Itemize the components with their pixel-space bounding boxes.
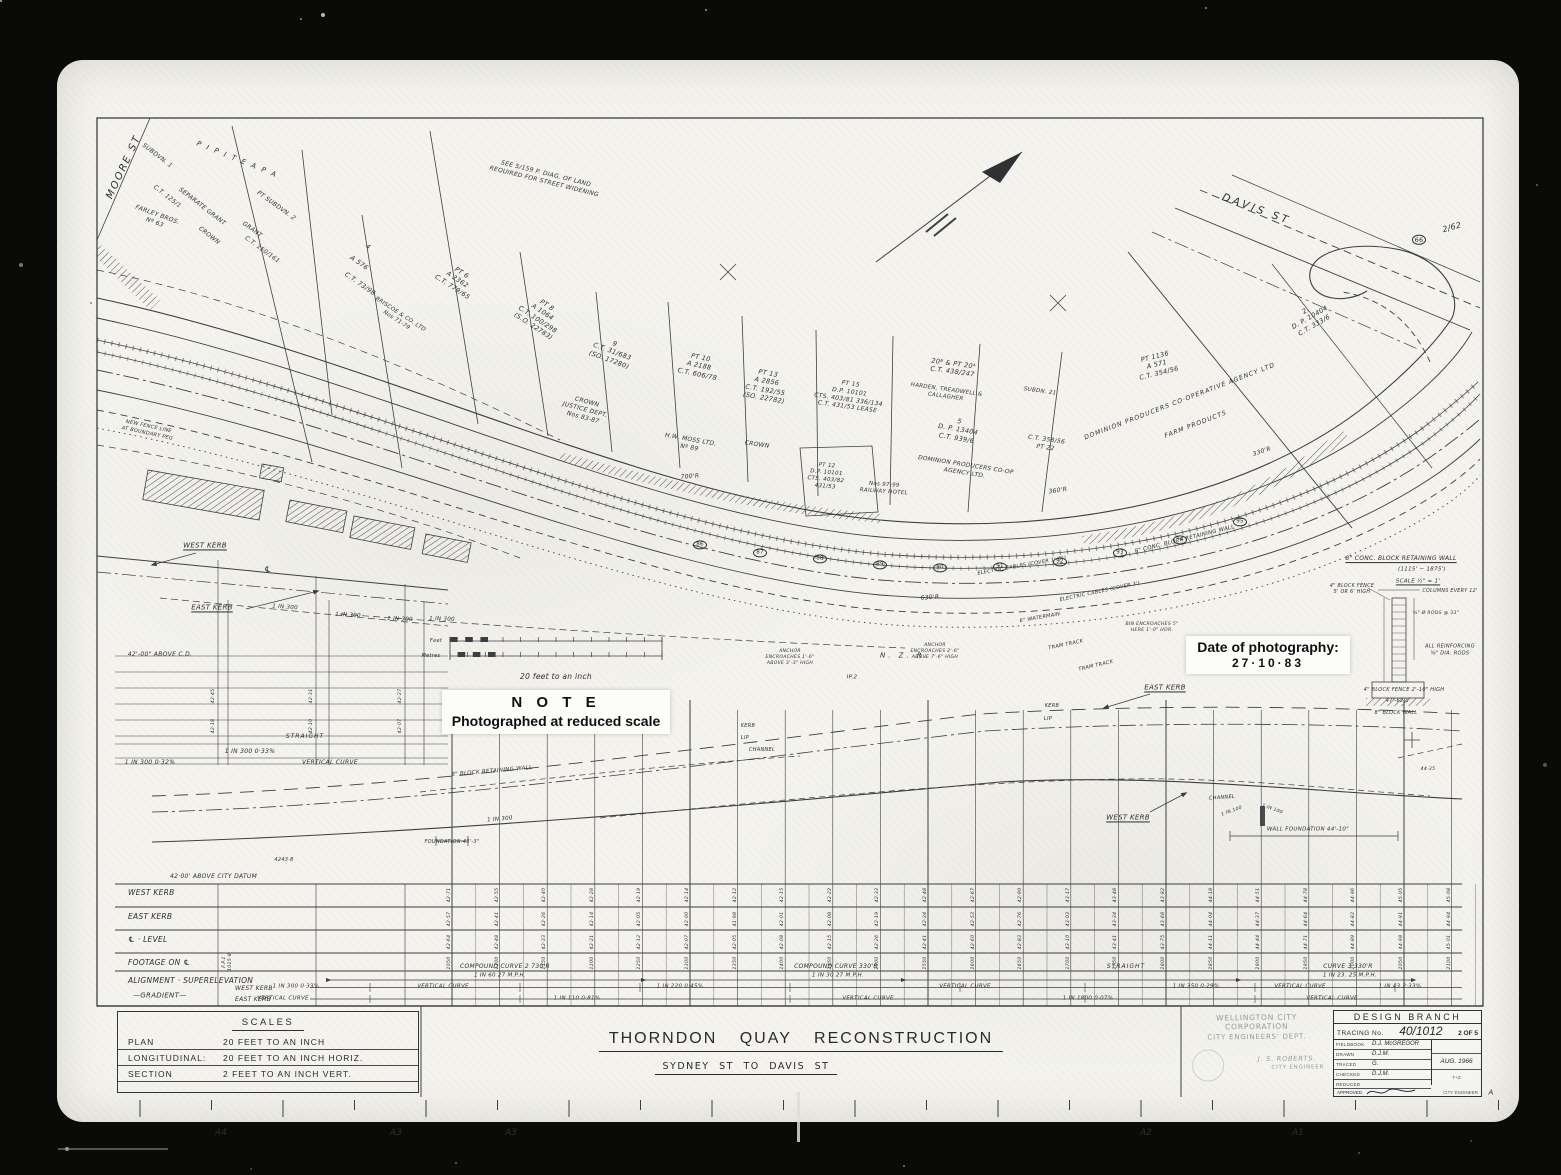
scan-ruler-mark: A3 <box>390 1128 402 1138</box>
scales-row-value: 20 FEET TO AN INCH <box>223 1037 408 1047</box>
approved-signature <box>1365 1086 1417 1098</box>
field-label: DRAWN <box>1336 1052 1372 1057</box>
scan-artifact-streak <box>797 1092 800 1142</box>
drawing-subtitle: SYDNEY ST TO DAVIS ST <box>655 1061 838 1075</box>
scan-speckles <box>0 0 2 2</box>
field-label: CHECKED <box>1336 1072 1372 1077</box>
scan-ruler-mark: A1 <box>1292 1128 1304 1138</box>
field-label: FIELDBOOK <box>1336 1042 1372 1047</box>
scales-row: SECTION2 FEET TO AN INCH VERT. <box>118 1066 418 1082</box>
design-branch-field: DRAWND.J.M. <box>1334 1050 1431 1060</box>
approver-title: CITY ENGINEER <box>1443 1090 1478 1095</box>
note-body: Photographed at reduced scale <box>442 713 670 729</box>
design-branch-field: CHECKEDD.J.M. <box>1334 1070 1431 1080</box>
scales-box: SCALES PLAN20 FEET TO AN INCHLONGITUDINA… <box>117 1011 419 1093</box>
scales-row: LONGITUDINAL:20 FEET TO AN INCH HORIZ. <box>118 1050 418 1066</box>
scales-row-name: PLAN <box>128 1037 223 1047</box>
scales-row-value: 2 FEET TO AN INCH VERT. <box>223 1069 408 1079</box>
reduction-note: T+Z <box>1432 1070 1481 1085</box>
tracing-no-label: TRACING No. <box>1337 1030 1384 1037</box>
field-value: D.J. McGREGOR <box>1372 1041 1419 1047</box>
scan-artifact-dash <box>58 1148 168 1150</box>
empty-cell <box>1432 1040 1481 1054</box>
scan-ruler-mark: A2 <box>1140 1128 1152 1138</box>
scales-row-name: SECTION <box>128 1069 223 1079</box>
scales-row-name: LONGITUDINAL: <box>128 1053 223 1063</box>
photo-date-heading: Date of photography: <box>1186 639 1350 655</box>
sheet-number: 2 OF 5 <box>1458 1030 1478 1037</box>
design-branch-field: FIELDBOOKD.J. McGREGOR <box>1334 1040 1431 1050</box>
photo-date-value: 27·10·83 <box>1186 656 1350 670</box>
note-label: N O T E Photographed at reduced scale <box>442 690 670 734</box>
design-branch-title: DESIGN BRANCH <box>1334 1011 1481 1024</box>
plan-linework <box>0 0 1561 1175</box>
field-value: G. <box>1372 1061 1378 1067</box>
scales-title: SCALES <box>232 1017 304 1031</box>
tracing-no-value: 40/1012 <box>1388 1024 1454 1038</box>
corporation-dept: CITY ENGINEERS' DEPT. <box>1184 1032 1330 1042</box>
design-branch-field: TRACEDG. <box>1334 1060 1431 1070</box>
drawing-date: AUG. 1966 <box>1432 1054 1481 1070</box>
drawing-title: THORNDON QUAY RECONSTRUCTION <box>599 1030 1003 1052</box>
corporation-name: WELLINGTON CITY CORPORATION <box>1184 1012 1330 1032</box>
scales-row-value: 20 FEET TO AN INCH HORIZ. <box>223 1053 408 1063</box>
photo-date-label: Date of photography: 27·10·83 <box>1186 636 1350 674</box>
corporation-stamp: WELLINGTON CITY CORPORATION CITY ENGINEE… <box>1184 1012 1331 1094</box>
round-stamp <box>1192 1049 1224 1081</box>
design-branch-box: DESIGN BRANCH TRACING No. 40/1012 2 OF 5… <box>1333 1010 1482 1097</box>
scan-ruler-mark: A4 <box>215 1128 227 1138</box>
note-title: N O T E <box>442 694 670 711</box>
approved-label: APPROVED <box>1337 1090 1362 1095</box>
scanned-drawing-canvas: MOORE STDAVIS STSEE 5/159 P. DIAG. OF LA… <box>0 0 1561 1175</box>
title-block: THORNDON QUAY RECONSTRUCTION SYDNEY ST T… <box>422 1007 1180 1097</box>
scan-ruler-mark: A3 <box>505 1128 517 1138</box>
field-value: D.J.M. <box>1372 1071 1389 1077</box>
scales-row: PLAN20 FEET TO AN INCH <box>118 1034 418 1050</box>
field-value: D.J.M. <box>1372 1051 1389 1057</box>
field-label: TRACED <box>1336 1062 1372 1067</box>
